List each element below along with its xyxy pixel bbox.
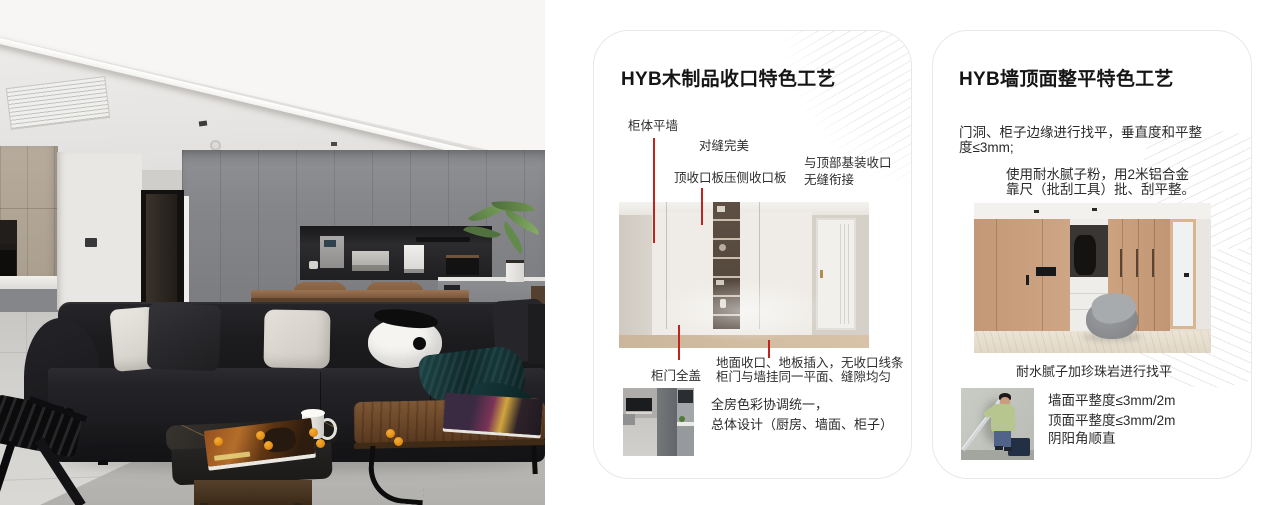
thumb-grey-column	[657, 388, 677, 456]
callout-ceiling-joint-line1: 与顶部基装收口	[804, 155, 904, 172]
magazine	[443, 393, 543, 436]
walnut-coffee-table	[354, 396, 545, 505]
paragraph2-line1: 使用耐水腻子粉，用2米铝合金	[1006, 168, 1189, 183]
photo-hanging-clothes	[1074, 235, 1096, 275]
card-title: HYB木制品收口特色工艺	[621, 64, 836, 91]
thumb-worker-shoe	[995, 446, 1003, 450]
kitchen-countertop	[0, 276, 58, 289]
photo-door-grooves	[840, 224, 850, 324]
callout-top-trim-panel: 顶收口板压侧收口板	[674, 171, 787, 185]
dining-table-top	[251, 290, 469, 298]
white-pillow	[263, 309, 330, 368]
photo-shelf-decor	[719, 244, 726, 251]
thumb-appliance	[678, 390, 693, 403]
photo-white-door	[1173, 222, 1193, 326]
photo-panel-seam	[1042, 219, 1043, 337]
kumquat	[214, 437, 223, 446]
photo-ceiling	[974, 203, 1211, 219]
photo-shelf-decor	[717, 206, 725, 212]
callout-ceiling-joint-line2: 无缝衔接	[804, 172, 904, 189]
photo-door-pull	[1120, 249, 1122, 277]
photo-door-handle	[820, 270, 823, 278]
ceiling-downlight	[331, 142, 337, 146]
mug-rim	[301, 409, 325, 417]
walnut-table-leg	[531, 446, 537, 474]
photo-panel-seam	[1154, 219, 1155, 331]
paragraph1-line1: 门洞、柜子边缘进行找平，垂直度和平整	[959, 126, 1202, 141]
kumquat	[394, 437, 403, 446]
white-wall	[57, 152, 142, 310]
card-title: HYB墙顶面整平特色工艺	[959, 64, 1174, 91]
photo-door-handle	[1184, 273, 1189, 277]
kitchen-coffee-machine	[0, 244, 16, 278]
summary-line2: 总体设计（厨房、墙面、柜子）	[711, 414, 893, 433]
black-pillow	[147, 303, 221, 371]
stone-table-base	[194, 480, 312, 505]
photo-door-pull	[1136, 249, 1138, 277]
cup	[309, 261, 318, 269]
spec-ceiling-flatness: 顶面平整度≤3mm/2m	[1048, 414, 1175, 429]
paragraph1-line2: 度≤3mm;	[959, 141, 1014, 156]
kumquat	[309, 428, 318, 437]
callout-cabinet-flush-wall: 柜体平墙	[628, 119, 678, 133]
photo-control-panel	[1036, 267, 1056, 276]
wood-closet-photo	[974, 203, 1211, 353]
spec-wall-flatness: 墙面平整度≤3mm/2m	[1048, 394, 1175, 409]
card-woodwork-craft: HYB木制品收口特色工艺 柜体平墙 对缝完美 顶收口板压侧收口板 与顶部基装收口…	[593, 30, 912, 479]
callout-floor-joint: 地面收口、地板插入，无收口线条 柜门与墙挂同一平面、缝隙均匀	[716, 357, 904, 384]
rays-pattern-fade	[735, 30, 912, 223]
photo-caption: 耐水腻子加珍珠岩进行找平	[1016, 361, 1172, 380]
photo-left-wall	[619, 215, 652, 335]
photo-door-pull	[1152, 249, 1154, 277]
coffee-machine-screen	[324, 240, 336, 247]
callout-floor-joint-line1: 地面收口、地板插入，无收口线条	[716, 357, 904, 371]
summary-line1: 全房色彩协调统一，	[711, 395, 828, 414]
thumb-worker-shoe	[1004, 447, 1012, 451]
light-switch	[85, 238, 97, 247]
plant-pot	[506, 260, 524, 282]
walnut-table-leg	[366, 446, 428, 505]
living-room-photo	[0, 0, 545, 505]
thumb-worker-jeans	[994, 431, 1011, 447]
kitchen-lower-cabinets	[0, 289, 58, 312]
kumquat	[264, 441, 273, 450]
chair-leg	[0, 441, 16, 501]
thumb-lower-cabinet	[677, 426, 694, 456]
kumquat	[256, 431, 265, 440]
door-frame	[184, 196, 189, 310]
potted-plant	[462, 200, 545, 284]
page: HYB木制品收口特色工艺 柜体平墙 对缝完美 顶收口板压侧收口板 与顶部基装收口…	[0, 0, 1280, 505]
kitchen-thumbnail-photo	[623, 388, 694, 456]
thumb-tv	[626, 398, 652, 411]
photo-downlight	[1092, 208, 1097, 211]
cabinet-seam	[0, 208, 58, 209]
wardrobe-render-photo	[619, 202, 869, 348]
photo-downlight	[1034, 210, 1039, 213]
photo-far-wall	[1196, 219, 1211, 329]
photo-panel-seam	[996, 219, 997, 337]
spec-corner-straightness: 阴阳角顺直	[1048, 432, 1116, 447]
kumquat	[316, 439, 325, 448]
photo-panel-seam	[1138, 219, 1139, 331]
photo-wood-wall	[974, 219, 1070, 339]
plant-leaf	[463, 219, 501, 245]
black-lounge-chair	[0, 396, 93, 505]
photo-door-handle	[1026, 275, 1029, 285]
annotation-line-door	[678, 325, 680, 360]
panda-eye	[413, 337, 426, 350]
callout-perfect-seam: 对缝完美	[699, 139, 749, 153]
thumb-sofa	[623, 414, 635, 425]
photo-light-glow	[659, 280, 829, 342]
callout-ceiling-joint: 与顶部基装收口 无缝衔接	[804, 155, 904, 189]
espresso-maker	[404, 245, 424, 273]
plastering-worker-photo	[961, 388, 1034, 460]
cup-rack	[352, 251, 389, 271]
annotation-line-cabinet-wall	[653, 138, 655, 243]
paragraph2-line2: 靠尺（批刮工具）批、刮平整。	[1006, 183, 1195, 198]
door-panel	[146, 194, 177, 304]
dark-pillow	[528, 304, 545, 364]
annotation-line-top-panel	[701, 188, 703, 225]
card-wall-ceiling-leveling: HYB墙顶面整平特色工艺 门洞、柜子边缘进行找平，垂直度和平整 度≤3mm; 使…	[932, 30, 1252, 479]
kumquat	[386, 429, 395, 438]
callout-full-overlay-door: 柜门全盖	[651, 369, 701, 383]
callout-floor-joint-line2: 柜门与墙挂同一平面、缝隙均匀	[716, 371, 904, 385]
